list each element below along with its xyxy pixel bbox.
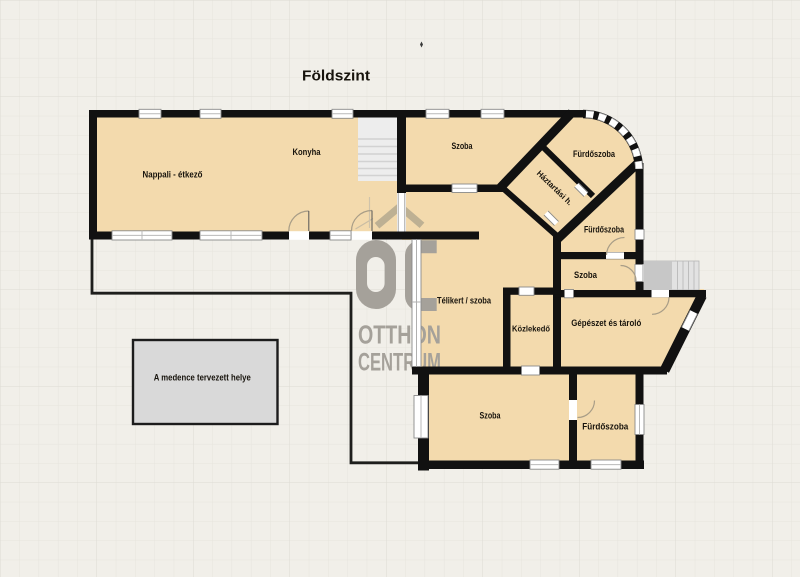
svg-text:Fürdőszoba: Fürdőszoba [584, 225, 625, 235]
svg-text:Fürdőszoba: Fürdőszoba [582, 422, 629, 433]
svg-text:Télikert / szoba: Télikert / szoba [437, 296, 492, 307]
svg-text:Szoba: Szoba [574, 270, 598, 280]
svg-text:Gépészet és tároló: Gépészet és tároló [571, 318, 641, 329]
svg-text:Nappali - étkező: Nappali - étkező [143, 169, 203, 180]
svg-text:A medence tervezett helye: A medence tervezett helye [154, 372, 251, 382]
svg-text:Fürdőszoba: Fürdőszoba [573, 149, 616, 159]
svg-text:OTTHON: OTTHON [358, 320, 441, 350]
svg-text:Konyha: Konyha [293, 147, 322, 158]
svg-text:Földszint: Földszint [302, 69, 370, 85]
svg-text:Közlekedő: Közlekedő [512, 323, 550, 333]
svg-text:Szoba: Szoba [452, 141, 474, 152]
svg-text:Szoba: Szoba [480, 410, 502, 421]
